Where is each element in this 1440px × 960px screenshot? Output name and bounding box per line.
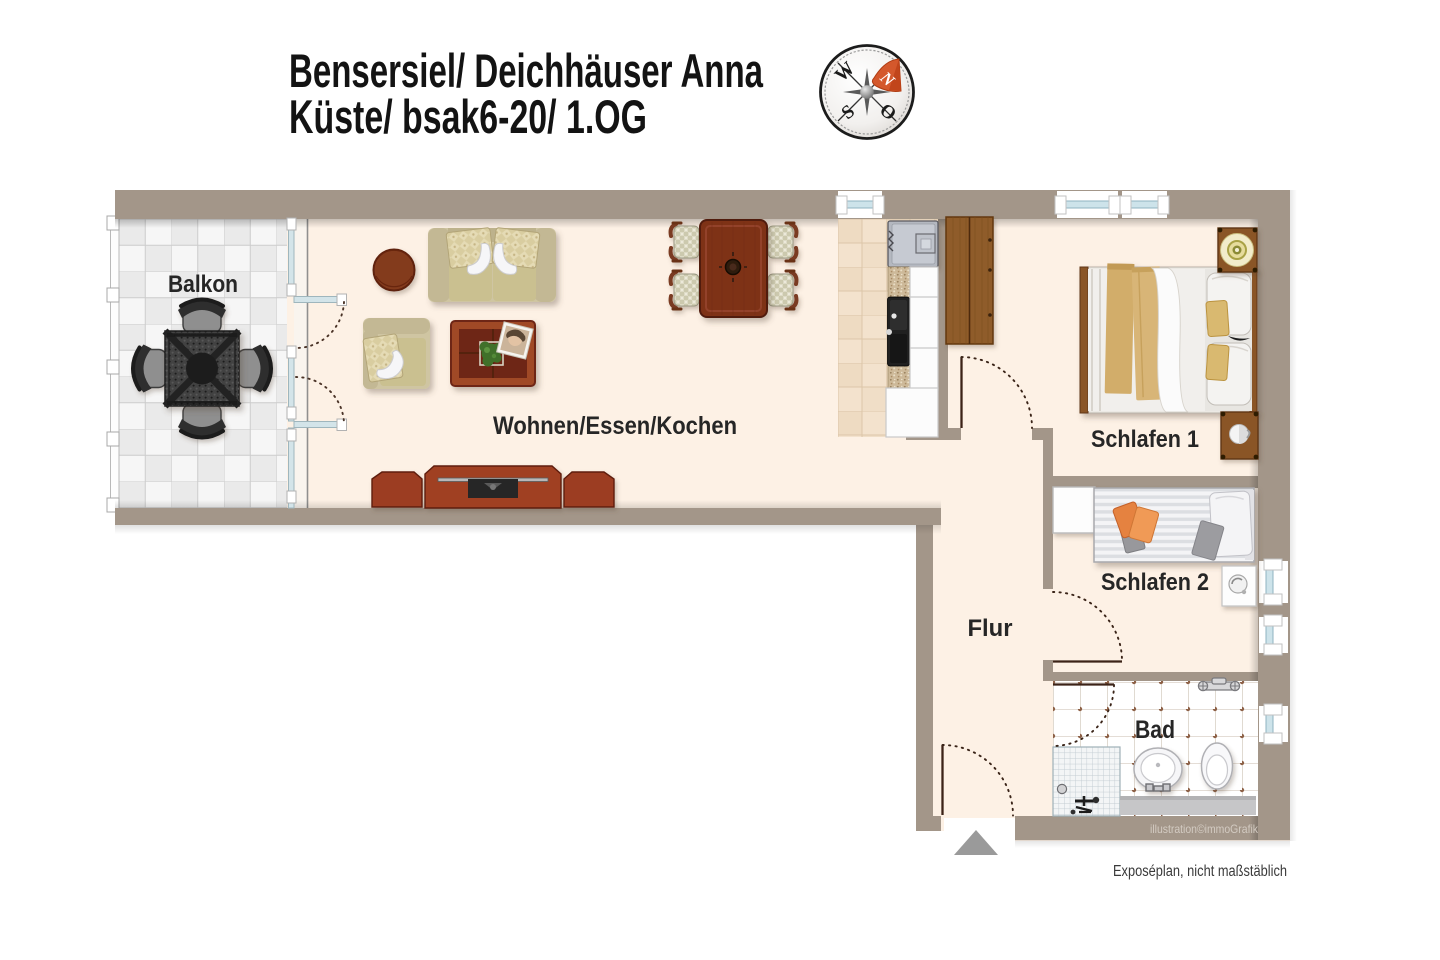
svg-text:illustration©immoGrafik: illustration©immoGrafik [1150, 822, 1259, 836]
svg-text:Bad: Bad [1135, 716, 1175, 744]
svg-text:Schlafen 2: Schlafen 2 [1101, 569, 1209, 596]
svg-text:Küste/ bsak6-20/ 1.OG: Küste/ bsak6-20/ 1.OG [289, 90, 647, 143]
svg-text:Schlafen 1: Schlafen 1 [1091, 426, 1199, 453]
svg-text:Exposéplan, nicht maßstäblich: Exposéplan, nicht maßstäblich [1113, 863, 1287, 880]
svg-text:Balkon: Balkon [168, 271, 238, 298]
svg-text:Flur: Flur [968, 615, 1013, 642]
svg-text:Wohnen/Essen/Kochen: Wohnen/Essen/Kochen [493, 412, 737, 440]
